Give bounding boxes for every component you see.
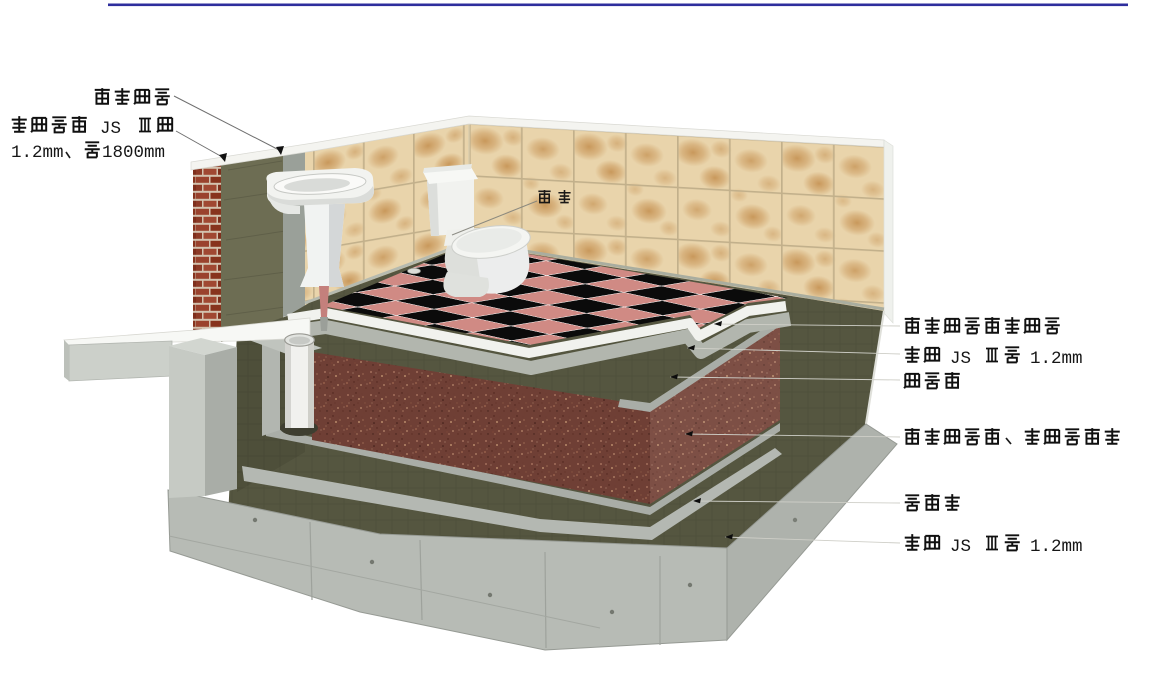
svg-text:1.2mm: 1.2mm	[1030, 349, 1083, 369]
svg-text:1.2mm: 1.2mm	[1030, 537, 1083, 557]
svg-text:JS: JS	[100, 119, 121, 139]
svg-text:1800mm: 1800mm	[102, 143, 165, 163]
svg-text:JS: JS	[950, 537, 971, 557]
svg-text:JS: JS	[950, 349, 971, 369]
svg-text:1.2mm: 1.2mm	[11, 143, 64, 163]
